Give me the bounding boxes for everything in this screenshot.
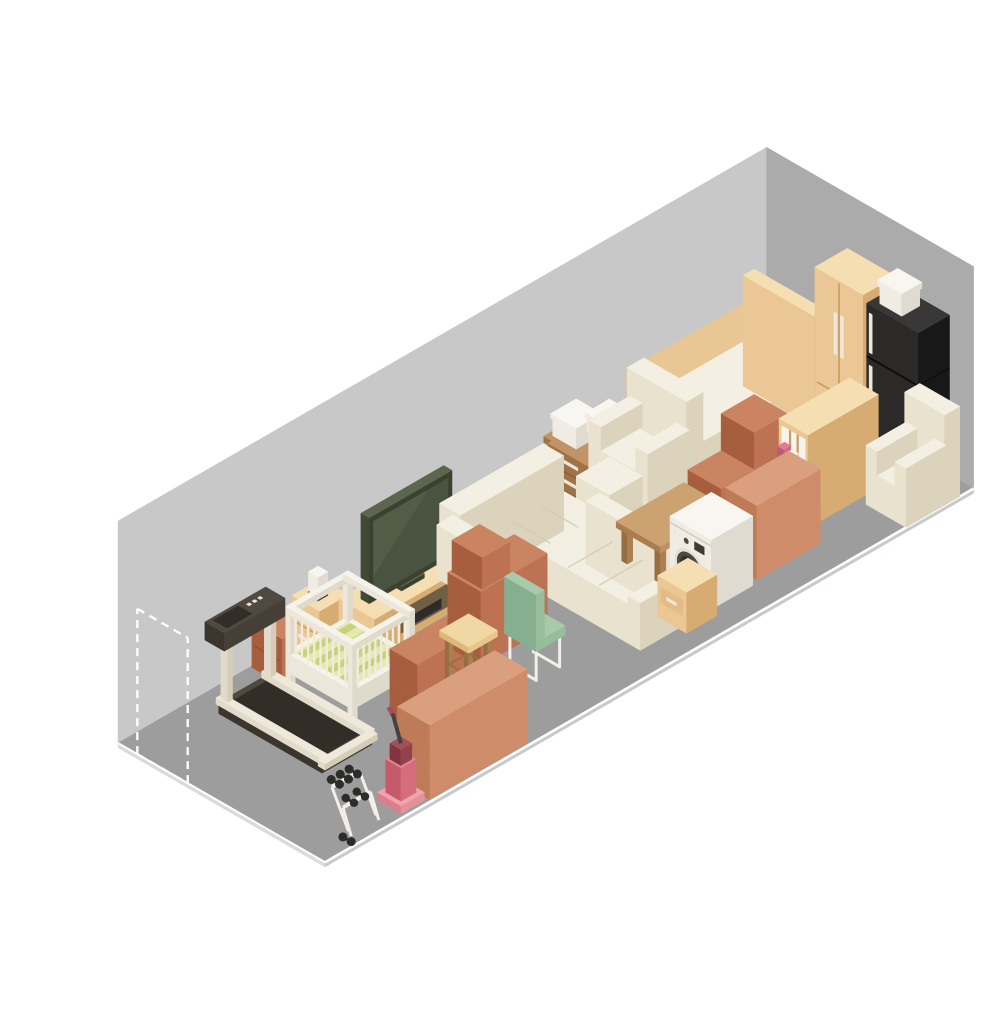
- scene-svg: [40, 16, 1000, 1016]
- storage-unit-illustration: Isometric illustration of a long self-st…: [40, 16, 1000, 1016]
